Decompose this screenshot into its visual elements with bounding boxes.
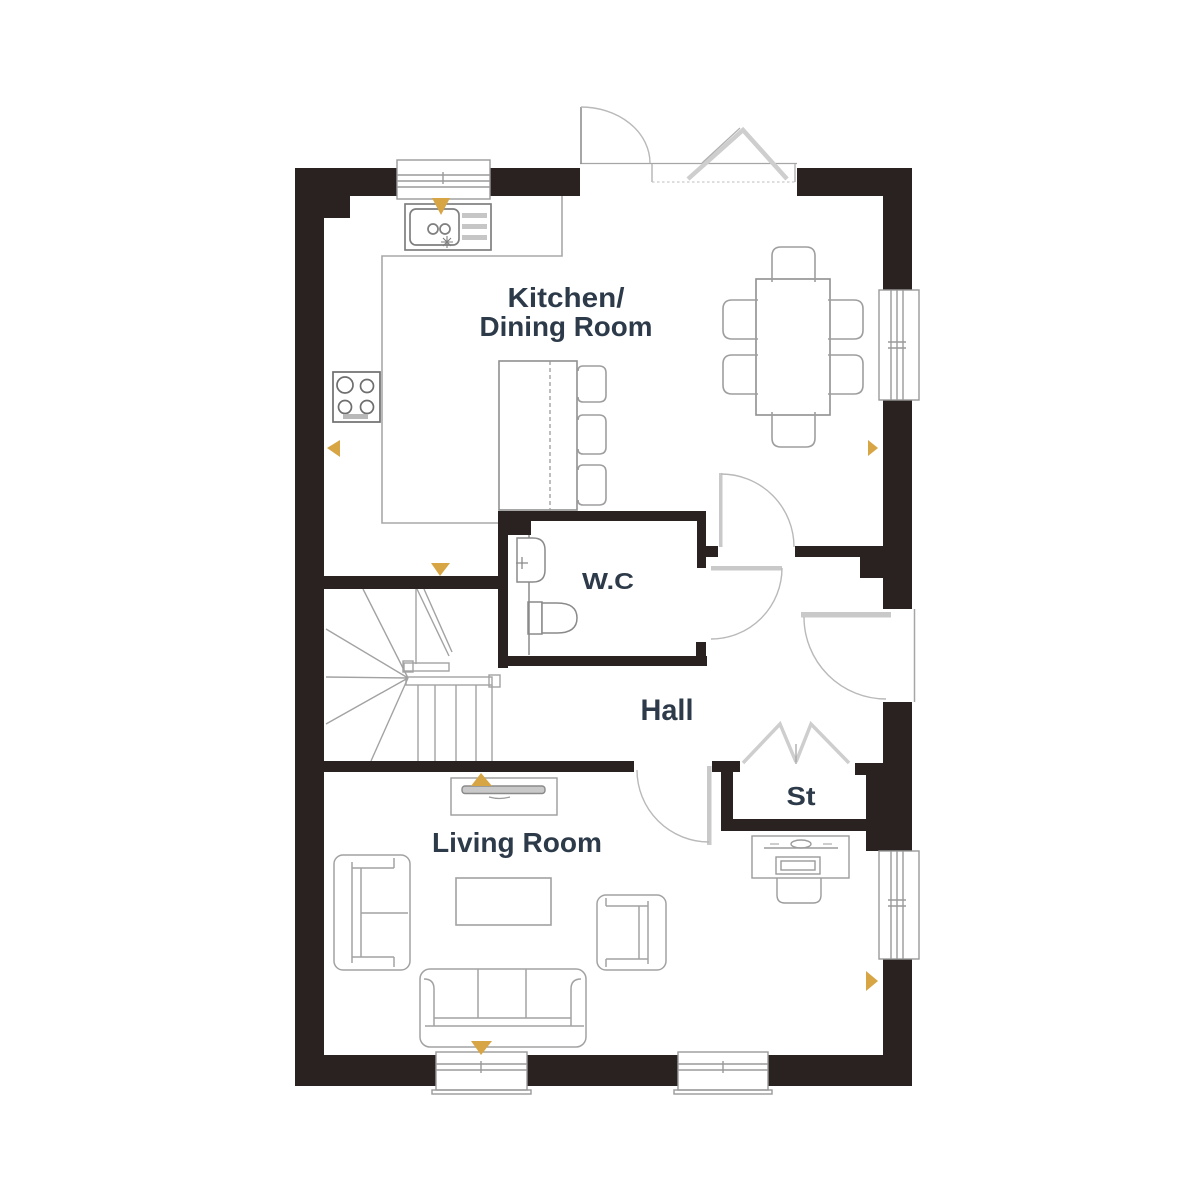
svg-text:W.C: W.C — [582, 568, 634, 594]
svg-text:St: St — [787, 781, 816, 811]
svg-text:Hall: Hall — [641, 694, 694, 727]
svg-text:Dining Room: Dining Room — [480, 311, 653, 342]
svg-text:Kitchen/: Kitchen/ — [508, 282, 625, 313]
svg-text:Living Room: Living Room — [432, 827, 602, 858]
